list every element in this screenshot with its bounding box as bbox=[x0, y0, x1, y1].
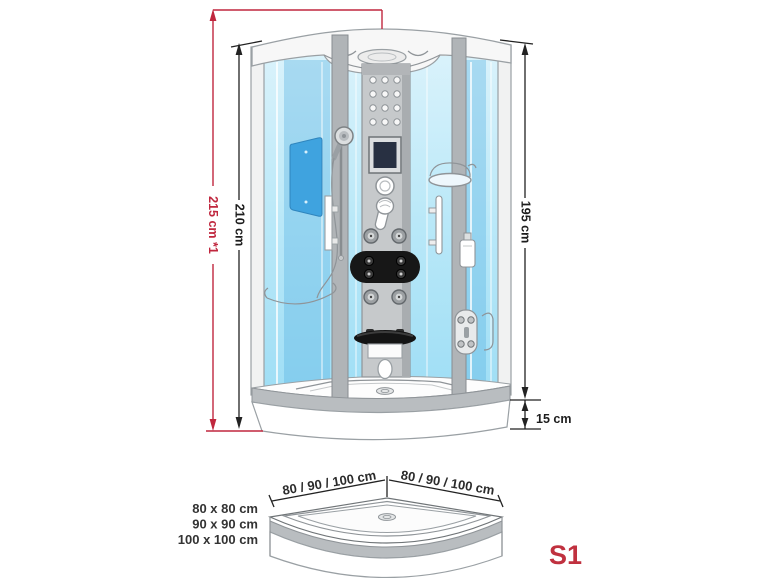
glass-height-label: 195 cm bbox=[519, 201, 533, 243]
diagram-canvas: 215 cm *1 210 cm 195 cm 15 cm bbox=[0, 0, 770, 578]
control-panel-screen bbox=[369, 137, 401, 173]
left-curved-glass-edge bbox=[251, 47, 264, 395]
floor-fitting bbox=[378, 360, 392, 379]
cabin-height-label: 210 cm bbox=[233, 204, 247, 246]
size-option-90: 90 x 90 cm bbox=[192, 517, 258, 532]
panel-screw-bottom bbox=[305, 201, 308, 204]
model-label: S1 bbox=[549, 540, 582, 570]
right-curved-glass-edge bbox=[498, 45, 511, 395]
control-knob bbox=[376, 177, 394, 195]
rain-shower-head bbox=[358, 50, 406, 65]
drain bbox=[377, 388, 394, 395]
back-massage-panel bbox=[350, 251, 420, 283]
total-height-label: 215 cm *1 bbox=[206, 196, 220, 254]
tray-height-label: 15 cm bbox=[536, 412, 571, 426]
tray-drain bbox=[379, 514, 396, 521]
shower-cabin-dimension-diagram: 215 cm *1 210 cm 195 cm 15 cm bbox=[0, 0, 770, 578]
foot-rest bbox=[368, 344, 402, 358]
size-option-80: 80 x 80 cm bbox=[192, 501, 258, 516]
panel-screw-top bbox=[305, 151, 308, 154]
size-option-100: 100 x 100 cm bbox=[178, 532, 258, 547]
back-rest-panel bbox=[290, 138, 322, 217]
